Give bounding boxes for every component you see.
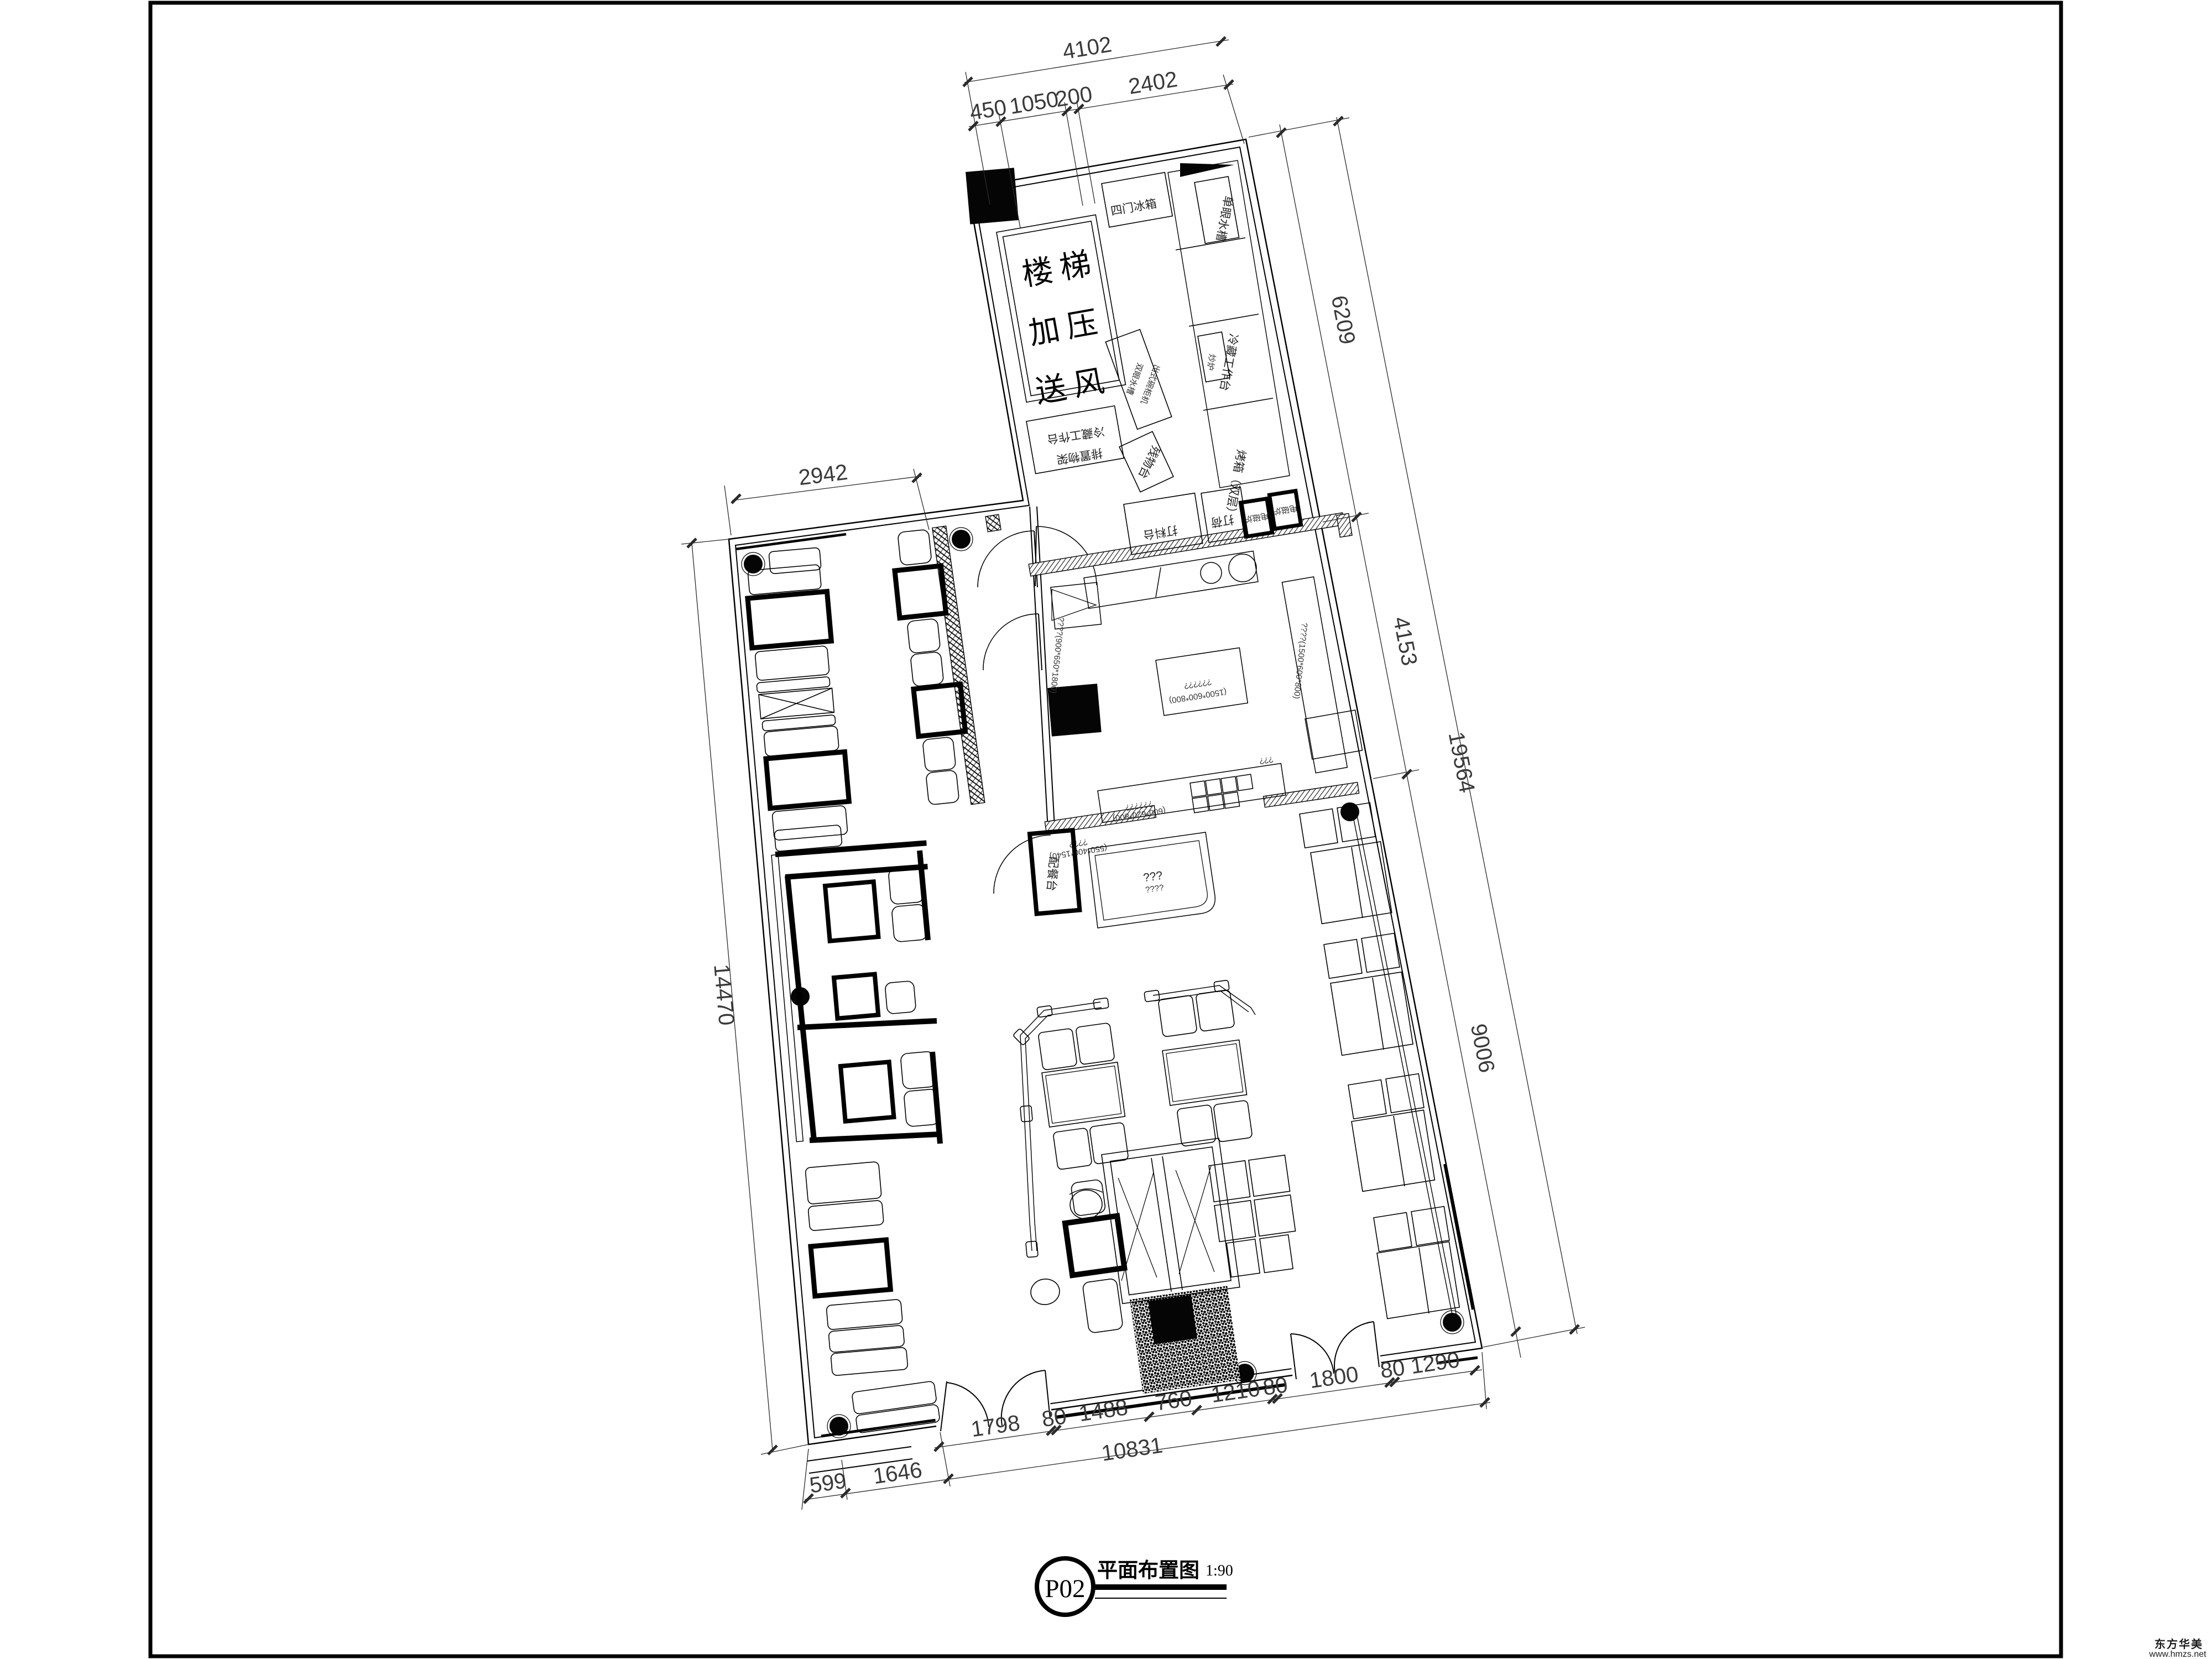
svg-text:80: 80 [1379, 1355, 1406, 1383]
svg-text:80: 80 [1040, 1404, 1068, 1432]
svg-text:风: 风 [1070, 363, 1107, 403]
svg-text:送: 送 [1032, 370, 1069, 410]
svg-text:平面布置图: 平面布置图 [1097, 1559, 1199, 1582]
svg-text:80: 80 [1261, 1373, 1289, 1400]
svg-text:梯: 梯 [1057, 246, 1093, 286]
svg-text:www.hmzs.net: www.hmzs.net [2148, 1650, 2206, 1659]
svg-text:楼: 楼 [1019, 253, 1056, 293]
svg-text:760: 760 [1154, 1386, 1193, 1416]
svg-text:东方华美: 东方华美 [2154, 1637, 2203, 1651]
svg-text:599: 599 [808, 1469, 848, 1498]
svg-text:压: 压 [1063, 305, 1100, 345]
svg-text:???: ??? [1142, 869, 1164, 885]
svg-text:P02: P02 [1045, 1574, 1085, 1603]
svg-text:加: 加 [1026, 311, 1062, 351]
svg-text:1:90: 1:90 [1206, 1562, 1233, 1579]
